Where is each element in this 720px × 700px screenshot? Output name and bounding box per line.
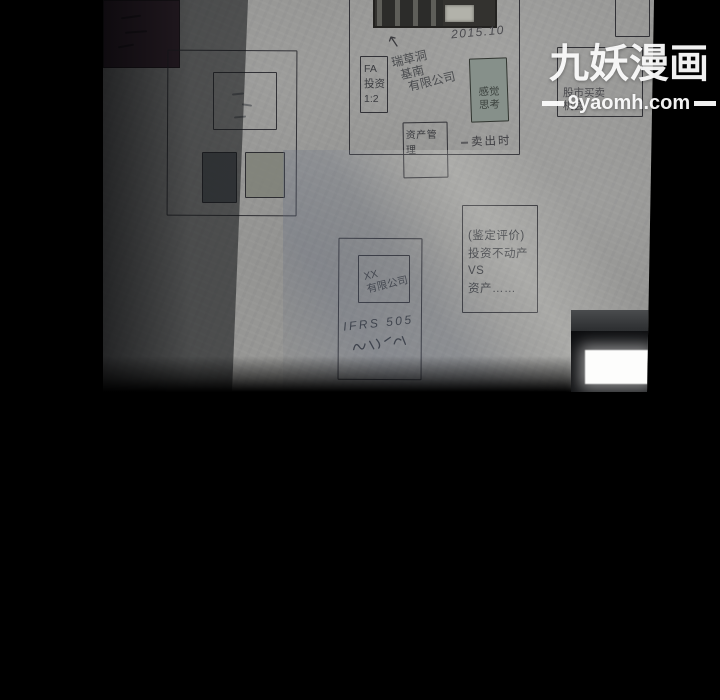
board-box-small-light [245,152,285,198]
tick-mark [461,142,468,144]
fa-line: FA [364,62,387,77]
stock-trading-box: 股市买卖 机会 [557,47,643,117]
asset-management-box: 资产管理 [403,122,449,179]
arrow-up-icon [386,34,400,48]
board-box-small-dark [202,152,237,203]
scribble-mark [121,15,141,20]
scribble-mark [232,92,244,95]
appraisal-vs-box: (鉴定评价) 投资不动产 VS 资产…… [462,205,538,313]
comic-page[interactable]: 2015.10 FA 投资 1:2 瑞草洞 基南 有限公司 感觉 思考 资产管理… [0,0,720,700]
photo-inset-picture [445,5,474,22]
scribble-mark [118,44,134,49]
board-box-cut-top [615,0,650,37]
xx-company-box: XX 有限公司 [358,255,410,303]
feeling-thinking-box: 感觉 思考 [469,57,509,122]
fa-line: 1:2 [364,92,387,107]
board-box-small-top [213,72,277,130]
glowing-window [585,350,649,384]
scribble-mark [125,30,147,34]
scribble-mark [234,115,246,118]
scribble-mark [242,103,252,106]
lit-wall-board: 2015.10 FA 投资 1:2 瑞草洞 基南 有限公司 感觉 思考 资产管理… [103,0,654,392]
watermark-dash [694,101,716,106]
sell-time-note: 卖出时 [461,132,512,150]
photo-building-detail [377,0,443,26]
fa-line: 投资 [364,77,387,92]
fa-investment-box: FA 投资 1:2 [360,56,388,113]
window-top-bar [571,310,651,331]
taped-photo [373,0,497,28]
